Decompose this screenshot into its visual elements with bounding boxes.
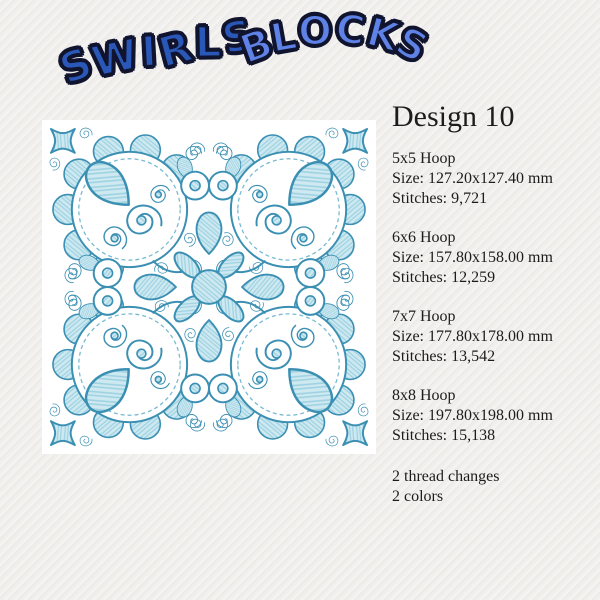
logo-word-swirls: SWIRLS (56, 14, 260, 87)
spec-block-5x5: 5x5 Hoop Size: 127.20x127.40 mm Stitches… (392, 149, 592, 209)
thread-notes: 2 thread changes 2 colors (392, 467, 592, 507)
hoop-stitches: Stitches: 13,542 (392, 347, 592, 367)
embroidery-preview (42, 120, 376, 454)
product-card: { "logo": { "word1": "SWIRLS", "word2": … (0, 0, 600, 600)
logo-word-blocks: BLOCKS (235, 9, 434, 62)
embroidery-artwork (42, 120, 376, 454)
hoop-name: 7x7 Hoop (392, 307, 592, 327)
hoop-stitches: Stitches: 12,259 (392, 268, 592, 288)
hoop-stitches: Stitches: 15,138 (392, 426, 592, 446)
hoop-name: 5x5 Hoop (392, 149, 592, 169)
hoop-name: 8x8 Hoop (392, 386, 592, 406)
hoop-size: Size: 177.80x178.00 mm (392, 327, 592, 347)
hoop-size: Size: 157.80x158.00 mm (392, 248, 592, 268)
design-info-panel: Design 10 5x5 Hoop Size: 127.20x127.40 m… (392, 100, 592, 507)
design-title: Design 10 (392, 100, 592, 135)
hoop-size: Size: 197.80x198.00 mm (392, 406, 592, 426)
hoop-size: Size: 127.20x127.40 mm (392, 169, 592, 189)
hoop-stitches: Stitches: 9,721 (392, 189, 592, 209)
hoop-name: 6x6 Hoop (392, 228, 592, 248)
thread-changes-note: 2 thread changes (392, 467, 592, 487)
spec-block-6x6: 6x6 Hoop Size: 157.80x158.00 mm Stitches… (392, 228, 592, 288)
spec-block-8x8: 8x8 Hoop Size: 197.80x198.00 mm Stitches… (392, 386, 592, 446)
spec-block-7x7: 7x7 Hoop Size: 177.80x178.00 mm Stitches… (392, 307, 592, 367)
colors-note: 2 colors (392, 487, 592, 507)
